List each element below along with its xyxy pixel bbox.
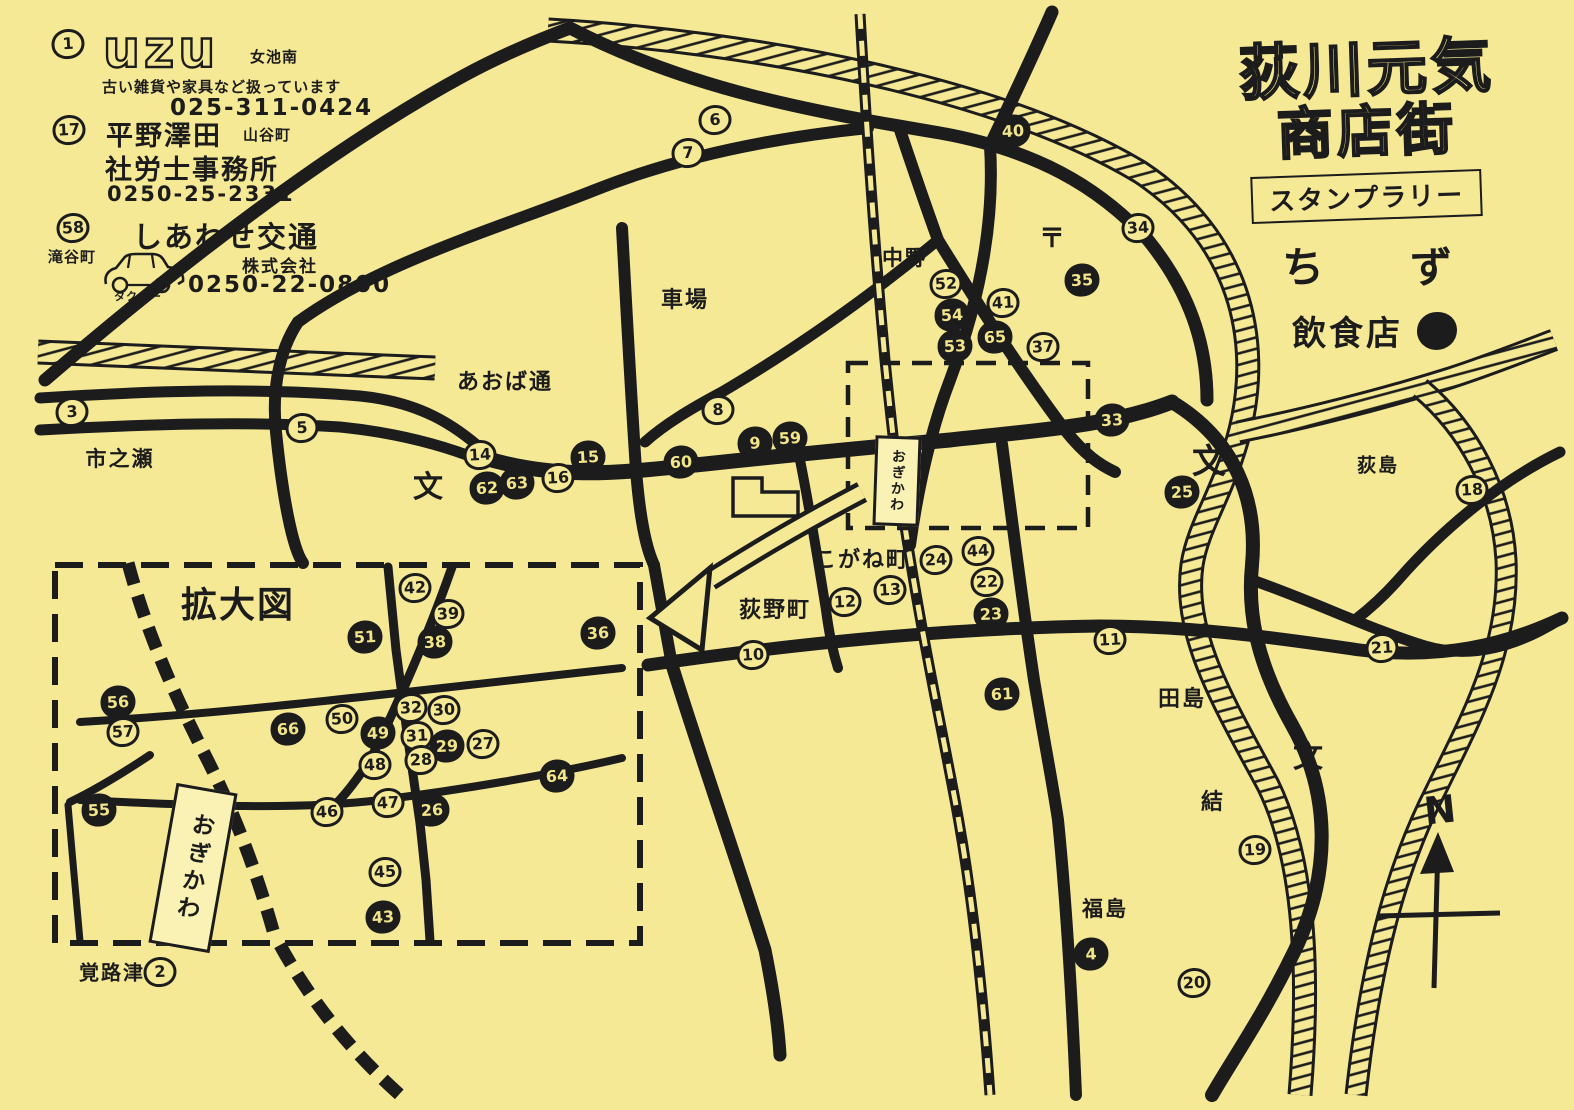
building-outline (733, 478, 798, 516)
title-banner: スタンプラリー (1251, 169, 1484, 224)
place-label-9: 荻島 (1357, 451, 1399, 478)
title-line-1: 荻川元気 (1221, 33, 1513, 108)
ad-uzu-area: 女池南 (250, 46, 298, 67)
school-symbol: 文 (413, 473, 443, 503)
legend: 飲食店 (1292, 306, 1457, 355)
place-label-2: 車場 (661, 282, 709, 314)
ad-hirano-area: 山谷町 (243, 124, 291, 145)
school-symbol: 文 (1192, 445, 1226, 479)
ad-shiawase-area: 滝谷町 (48, 246, 96, 267)
ad-uzu-description: 古い雑貨や家具など扱っています (102, 76, 341, 97)
ad-uzu-logo: uzu (103, 24, 219, 76)
place-label-11: 拡大図 (181, 576, 295, 628)
compass-north-label: N (1422, 786, 1458, 833)
place-label-1: あおば通 (457, 364, 553, 396)
place-label-3: 中野 (882, 242, 928, 272)
title-line-2: 商店街 (1221, 98, 1513, 169)
ad-hirano-phone: 0250-25-2331 (107, 182, 295, 206)
ogikawa-station-box-main: おぎかわ (872, 435, 921, 527)
subtitle-char-1: ち (1282, 234, 1324, 295)
place-label-0: 市之瀬 (86, 443, 155, 473)
place-label-8: 福島 (1082, 893, 1128, 923)
title-subtitle: ち ず (1282, 234, 1452, 295)
place-label-10: 覚路津 (79, 957, 145, 986)
ad-shiawase-taxi-label: タクシー (114, 288, 162, 304)
place-label-6: 田島 (1158, 681, 1206, 713)
place-label-7: 結 (1201, 784, 1225, 816)
subtitle-char-2: ず (1410, 234, 1452, 295)
restaurant-dot-icon (1417, 312, 1457, 350)
stamp-rally-map-page: 荻川元気 商店街 スタンプラリー ち ず 飲食店 N uzu 女池南 古い雑貨や… (0, 0, 1574, 1110)
school-symbol: 文 (1293, 743, 1323, 773)
ad-shiawase-phone: 0250-22-0800 (188, 272, 391, 298)
post-office-symbol: 〒 (1039, 226, 1065, 252)
place-label-4: こがね町 (814, 542, 910, 574)
legend-label: 飲食店 (1292, 306, 1403, 355)
map-title: 荻川元気 商店街 スタンプラリー ち ず (1222, 38, 1512, 295)
place-label-5: 荻野町 (739, 592, 811, 624)
